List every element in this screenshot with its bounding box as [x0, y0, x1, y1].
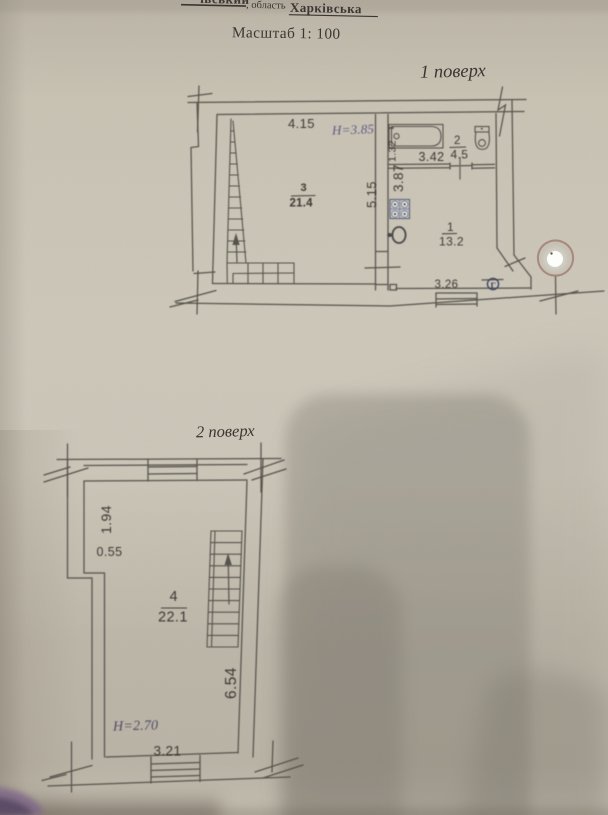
- svg-text:4.5: 4.5: [451, 148, 469, 162]
- svg-text:6.54: 6.54: [223, 667, 240, 699]
- svg-text:Г: Г: [491, 280, 496, 290]
- svg-text:3.21: 3.21: [154, 744, 182, 759]
- svg-text:3: 3: [301, 182, 308, 194]
- svg-text:5.15: 5.15: [364, 181, 379, 208]
- svg-text:2 поверх: 2 поверх: [196, 421, 256, 442]
- svg-text:H=2.70: H=2.70: [112, 718, 159, 734]
- svg-text:1 поверх: 1 поверх: [420, 61, 487, 83]
- svg-text:2: 2: [454, 135, 461, 147]
- svg-text:21.4: 21.4: [290, 198, 314, 210]
- svg-text:1: 1: [447, 220, 454, 234]
- svg-text:1.94: 1.94: [98, 505, 114, 534]
- svg-text:H=3.85: H=3.85: [331, 121, 375, 138]
- svg-text:Масштаб 1: 100: Масштаб 1: 100: [232, 24, 341, 43]
- svg-text:22.1: 22.1: [158, 610, 188, 626]
- svg-text:4: 4: [170, 589, 178, 605]
- svg-text:13.2: 13.2: [439, 235, 464, 249]
- svg-text:0.55: 0.55: [97, 545, 123, 559]
- svg-text:Харківська: Харківська: [290, 0, 362, 16]
- svg-text:4.15: 4.15: [288, 116, 315, 131]
- svg-text:1.32: 1.32: [387, 140, 399, 162]
- svg-text:3.87: 3.87: [391, 164, 406, 192]
- svg-text:3.26: 3.26: [435, 279, 459, 291]
- svg-text:3.42: 3.42: [419, 150, 445, 164]
- svg-text:, область: , область: [246, 0, 286, 12]
